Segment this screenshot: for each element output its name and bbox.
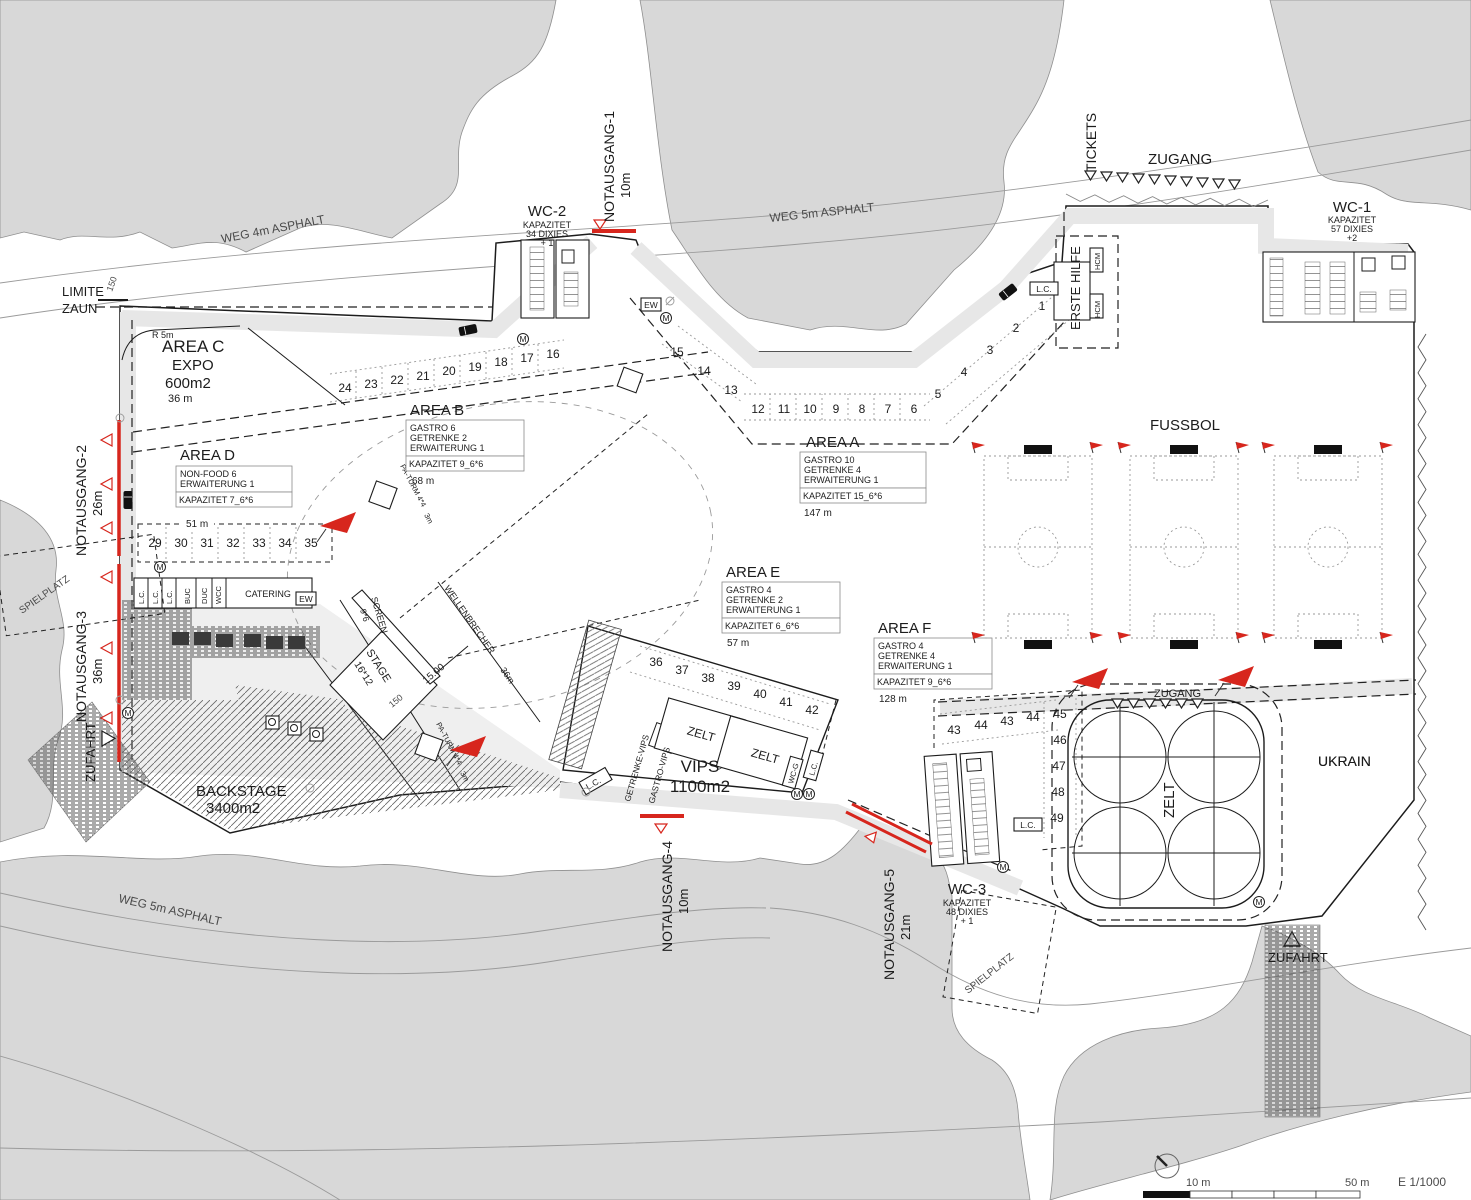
stand-39: 39 [727,679,741,693]
stand-14: 14 [697,364,711,378]
stand-31: 31 [200,536,214,550]
area-b-l1: GASTRO 6 [410,423,456,433]
area-b-l2: GETRENKE 2 [410,433,467,443]
stand-5: 5 [935,387,942,401]
terrain-bottom [0,826,1030,1200]
area-c-len: 36 m [168,393,192,405]
scale-50m: 50 m [1345,1177,1369,1189]
m-symbol: M [999,862,1006,872]
stand-42: 42 [805,703,819,717]
fussbol-label: FUSSBOL [1150,417,1220,434]
tickets-label: TICKETS [1083,113,1099,172]
erste-hilfe-label: ERSTE HILFE [1068,246,1083,330]
wc3-l3: + 1 [961,916,974,926]
hcm-2-label: HCM [1093,301,1102,318]
stand-19: 19 [468,360,482,374]
hcm-1-label: HCM [1093,253,1102,270]
m-symbol: M [662,313,669,323]
area-f-title: AREA F [878,620,931,637]
area-f-l3: ERWAITERUNG 1 [878,661,953,671]
stand-30: 30 [174,536,188,550]
notausgang1-len: 10m [618,173,633,198]
stand-43b: 43 [1000,714,1014,728]
scale-10m: 10 m [1186,1177,1210,1189]
stand-22: 22 [390,373,404,387]
lc-erste: L.C. [1036,284,1052,294]
stand-23: 23 [364,377,378,391]
lc-cat-3: L.C. [165,590,174,604]
stand-35: 35 [304,536,318,550]
area-b-len: 68 m [412,476,434,487]
stand-32: 32 [226,536,240,550]
catering-label: CATERING [245,589,291,599]
stand-13: 13 [724,383,738,397]
terrain-bottom-right [1050,926,1471,1200]
notausgang2-len: 26m [90,491,105,516]
ew-catering-label: EW [299,594,313,604]
notausgang3-len: 36m [90,659,105,684]
zelt-label: ZELT [1161,782,1178,818]
wc1-l3: +2 [1347,233,1357,243]
radius-label: R 5m [152,330,174,340]
backstage-label: BACKSTAGE [196,783,287,800]
car-icon [124,491,133,509]
vips-label: VIPS [681,757,720,776]
area-f-len: 128 m [879,694,907,705]
site-plan-drawing: WEG 4m ASPHALT WEG 5m ASPHALT WEG 5m ASP… [0,0,1471,1200]
stand-15: 15 [670,345,684,359]
stand-47: 47 [1052,759,1066,773]
notausgang4-label: NOTAUSGANG-4 [659,841,675,952]
notausgang4-len: 10m [676,889,691,914]
buc-label: BUC [183,588,192,604]
m-symbol: M [156,562,163,572]
m-symbol: M [805,789,812,799]
area-e-kap: KAPAZITET 6_6*6 [725,621,799,631]
notausgang3-label: NOTAUSGANG-3 [73,611,89,722]
stand-36: 36 [649,655,663,669]
terrain-top-middle [640,0,1064,330]
stand-34: 34 [278,536,292,550]
site-plan-page: WEG 4m ASPHALT WEG 5m ASPHALT WEG 5m ASP… [0,0,1471,1200]
area-a-title: AREA A [806,434,859,451]
duc-label: DUC [200,587,209,604]
catering-strip: L.C. L.C. L.C. BUC DUC WCC CATERING EW [134,578,316,608]
stand-44b: 44 [1026,710,1040,724]
notausgang5-label: NOTAUSGANG-5 [881,869,897,980]
stand-46: 46 [1053,733,1067,747]
stand-16: 16 [546,347,560,361]
limite-label: LIMITE [62,284,104,299]
stand-38: 38 [701,671,715,685]
area-e-l2: GETRENKE 2 [726,595,783,605]
ukrain-label2: UKRAIN [1318,753,1371,769]
stand-49: 49 [1050,811,1064,825]
stand-3: 3 [987,343,994,357]
notausgang5-len: 21m [898,915,913,940]
stand-2: 2 [1013,321,1020,335]
notausgang2-label: NOTAUSGANG-2 [73,445,89,556]
wc2-l3: + 1 [541,238,554,248]
stand-40: 40 [753,687,767,701]
area-d-l2: ERWAITERUNG 1 [180,479,255,489]
zufahrt-right-label: ZUFAHRT [1268,950,1328,965]
area-b-kap: KAPAZITET 9_6*6 [409,459,483,469]
area-c-size: 600m2 [165,375,211,392]
stand-9: 9 [833,402,840,416]
stand-12: 12 [751,402,765,416]
zugang-main-label: ZUGANG [1148,151,1212,168]
stand-18: 18 [494,355,508,369]
area-d-l1: NON-FOOD 6 [180,469,237,479]
lc-zelt: L.C. [1020,820,1036,830]
area-a-len: 147 m [804,508,832,519]
ew-box-label: EW [644,300,658,310]
stand-45: 45 [1053,707,1067,721]
stand-43a: 43 [947,723,961,737]
wc2-name: WC-2 [528,203,566,220]
wc3-name: WC-3 [948,881,986,898]
wc1-name: WC-1 [1333,199,1371,216]
area-a-kap: KAPAZITET 15_6*6 [803,491,882,501]
m-symbol: M [519,334,526,344]
notausgang1-label: NOTAUSGANG-1 [601,111,617,222]
backstage-size-label: 3400m2 [206,800,260,817]
vips-size-label: 1100m2 [670,777,730,796]
area-e-len: 57 m [727,638,749,649]
area-e-l3: ERWAITERUNG 1 [726,605,801,615]
zaun-label: ZAUN [62,301,97,316]
m-symbol: M [1255,897,1262,907]
area-d-title: AREA D [180,447,235,464]
stand-41: 41 [779,695,793,709]
spielplatz-bottom-label: SPIELPLATZ [963,952,1016,997]
lc-cat-2: L.C. [151,590,160,604]
stand-24: 24 [338,381,352,395]
area-d-kap: KAPAZITET 7_6*6 [179,495,253,505]
lc-cat-1: L.C. [137,590,146,604]
stand-48: 48 [1051,785,1065,799]
area-b-title: AREA B [410,402,464,419]
area-f-l1: GASTRO 4 [878,641,924,651]
stand-10: 10 [803,402,817,416]
area-e-l1: GASTRO 4 [726,585,772,595]
area-e-title: AREA E [726,564,780,581]
m-symbol: M [124,708,131,718]
area-f-l2: GETRENKE 4 [878,651,935,661]
stand-4: 4 [961,365,968,379]
area-a-l3: ERWAITERUNG 1 [804,475,879,485]
stand-33: 33 [252,536,266,550]
stand-44a: 44 [974,718,988,732]
stand-1: 1 [1039,299,1046,313]
area-c-expo: EXPO [172,357,214,374]
terrain-top-left [0,0,556,252]
stand-7: 7 [885,402,892,416]
area-d-len: 51 m [186,519,208,530]
area-a-l2: GETRENKE 4 [804,465,861,475]
m-symbol: M [793,789,800,799]
scale-ratio: E 1/1000 [1398,1175,1446,1189]
area-f-kap: KAPAZITET 9_6*6 [877,677,951,687]
stand-37: 37 [675,663,689,677]
stand-6: 6 [911,402,918,416]
stand-21: 21 [416,369,430,383]
zufahrt-left-label: ZUFAHRT [83,722,98,782]
stand-20: 20 [442,364,456,378]
stand-8: 8 [859,402,866,416]
area-a-l1: GASTRO 10 [804,455,855,465]
zugang-zelt-label: ZUGANG [1154,688,1201,700]
fence-level-label: 150 [104,275,119,293]
wc1-building [1263,252,1415,322]
stand-17: 17 [520,351,534,365]
area-b-l3: ERWAITERUNG 1 [410,443,485,453]
wcc-label: WCC [214,586,223,604]
stand-11: 11 [778,402,791,416]
